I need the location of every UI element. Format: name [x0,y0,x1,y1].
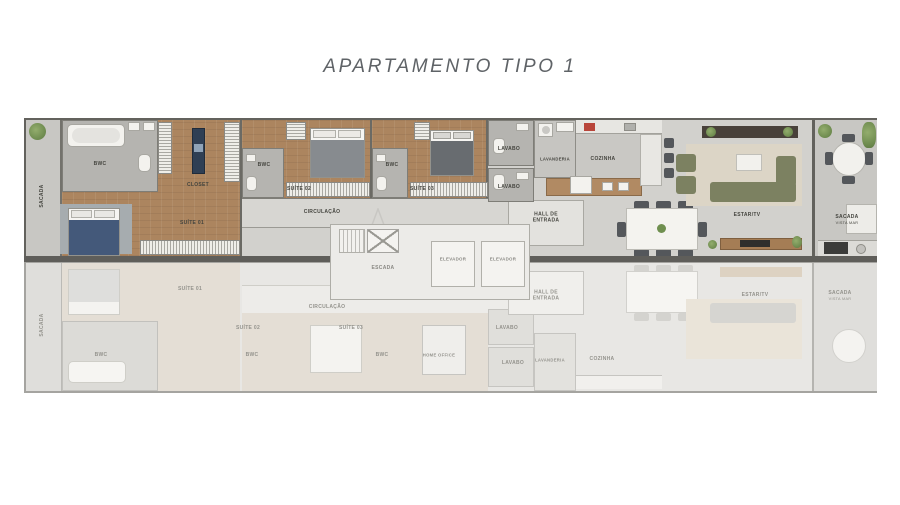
sink [143,122,155,131]
closet-island-drawer [194,144,203,152]
balcony-chair [842,176,855,184]
bar-counter [640,134,662,186]
sink [246,154,256,162]
suite2-wardrobe [286,122,306,140]
round-table [832,142,866,176]
bed-pillow [453,132,471,139]
room-label-circulacao: CIRCULAÇÃO [309,305,346,311]
closet-wardrobe [224,122,240,182]
page-title: APARTAMENTO TIPO 1 [0,56,900,78]
room-label-lavabo2: LAVABO [498,185,520,191]
room-label-bwc1: BWC [95,353,108,359]
sacada-right-text: SACADA [835,214,858,220]
plant-icon [708,240,717,249]
room-label-estar: ESTAR/TV [734,213,761,219]
room-label-bwc-suite3: BWC [386,163,399,169]
sink [376,154,386,162]
lower-round-table [832,329,866,363]
dining-chair [698,222,707,237]
lower-bathtub [68,361,126,383]
floorplan-page: { "title": "APARTAMENTO TIPO 1", "palett… [0,0,900,505]
room-label-elevador2: ELEVADOR [490,256,516,261]
room-label-escada: ESCADA [372,266,395,272]
plant-icon [29,123,46,140]
grill [824,242,848,254]
lower-office-desk [422,325,466,375]
building-core: ESCADA ELEVADOR ELEVADOR [330,224,530,300]
room-label-suite1: SUÍTE 01 [178,287,202,293]
bar-chair [664,168,674,178]
room-label-sacada-right: SACADA VISTA MAR [828,291,851,301]
floorplan: SACADA BWC CLOSET SUÍTE 01 SUÍTE 02 BWC … [24,118,877,395]
suite3-wardrobe [414,122,430,140]
bar-chair [664,138,674,148]
plant-icon [792,236,802,248]
sacada-right-subtext: VISTA MAR [835,221,858,225]
bed-pillow [313,130,336,138]
room-label-suite2: SUÍTE 02 [236,326,260,332]
balcony-chair [842,134,855,142]
cooktop [584,123,595,131]
sacada-right-text: SACADA [828,290,851,296]
room-label-lavabo1: LAVABO [496,326,518,332]
room-label-suite3: SUÍTE 03 [410,187,434,193]
room-label-elevador1: ELEVADOR [440,256,466,261]
bed-duvet [311,140,364,177]
plant-icon [818,124,832,138]
armchair [676,154,696,172]
room-label-bwc-suite2: BWC [258,163,271,169]
room-label-circulacao: CIRCULAÇÃO [304,210,341,216]
stair-icon [367,229,399,253]
lower-kitchen-counter [576,375,662,389]
suite1-wardrobe [140,240,240,255]
room-label-cozinha: COZINHA [591,157,616,163]
lower-lavabo2-room [488,347,534,387]
washer-door [542,126,550,134]
bed-pillow [338,130,361,138]
bathtub-basin [72,128,120,143]
bed-duvet [431,141,473,175]
lower-dining-chair [634,313,649,321]
coffee-table [736,154,762,171]
room-label-lavanderia: LAVANDERIA [540,158,570,163]
room-label-lavabo2: LAVABO [502,361,524,367]
toilet [138,154,151,172]
room-label-suite2: SUÍTE 02 [287,187,311,193]
centerpiece [657,224,666,233]
bed-pillow [433,132,451,139]
elevator-shaft [481,241,525,287]
bed-duvet [69,220,119,255]
bench-cushion [618,182,629,191]
lower-dining-chair [656,313,671,321]
lower-sofa [710,303,796,323]
toilet [246,176,257,191]
plant-icon [862,122,876,148]
plant-icon [706,127,716,137]
balcony-chair [825,152,833,165]
room-label-estar: ESTAR/TV [742,293,769,299]
side-table [570,176,592,194]
lower-sacada-right [814,263,877,391]
kitchen-sink [624,123,636,131]
plant-icon [783,127,793,137]
room-label-bwc3: BWC [376,353,389,359]
dining-chair [617,222,626,237]
balcony-sink [856,244,866,254]
toilet [376,176,387,191]
room-label-hall: HALL DE ENTRADA [529,212,563,224]
sofa-chaise [776,156,796,186]
balcony-chair [865,152,873,165]
room-label-suite1: SUÍTE 01 [180,221,204,227]
armchair [676,176,696,194]
bar-chair [664,153,674,163]
lower-bed [310,325,362,373]
tv [740,240,770,247]
room-label-sacada-left: SACADA [40,313,46,336]
room-label-bwc-suite1: BWC [94,162,107,168]
room-label-home-office: HOME OFFICE [423,354,455,359]
lower-tv-bench [720,267,802,277]
bed-pillow [71,210,92,218]
room-label-cozinha: COZINHA [590,357,615,363]
room-label-sacada-left: SACADA [40,184,46,207]
sacada-right-subtext: VISTA MAR [828,297,851,301]
room-label-closet: CLOSET [187,183,209,189]
stair-treads [339,229,365,253]
room-label-lavanderia: LAVANDERIA [535,359,565,364]
closet-wardrobe [158,122,172,174]
room-label-lavabo1: LAVABO [498,147,520,153]
sink [516,172,529,180]
elevator-shaft [431,241,475,287]
bed-pillow [94,210,115,218]
sink [516,123,529,131]
room-label-bwc2: BWC [246,353,259,359]
laundry-counter [556,122,574,132]
bench-cushion [602,182,613,191]
room-label-hall: HALL DE ENTRADA [529,290,563,302]
sink [128,122,140,131]
room-label-sacada-right: SACADA VISTA MAR [835,215,858,225]
lower-bed-duvet [69,270,119,302]
room-label-suite3: SUÍTE 03 [339,326,363,332]
